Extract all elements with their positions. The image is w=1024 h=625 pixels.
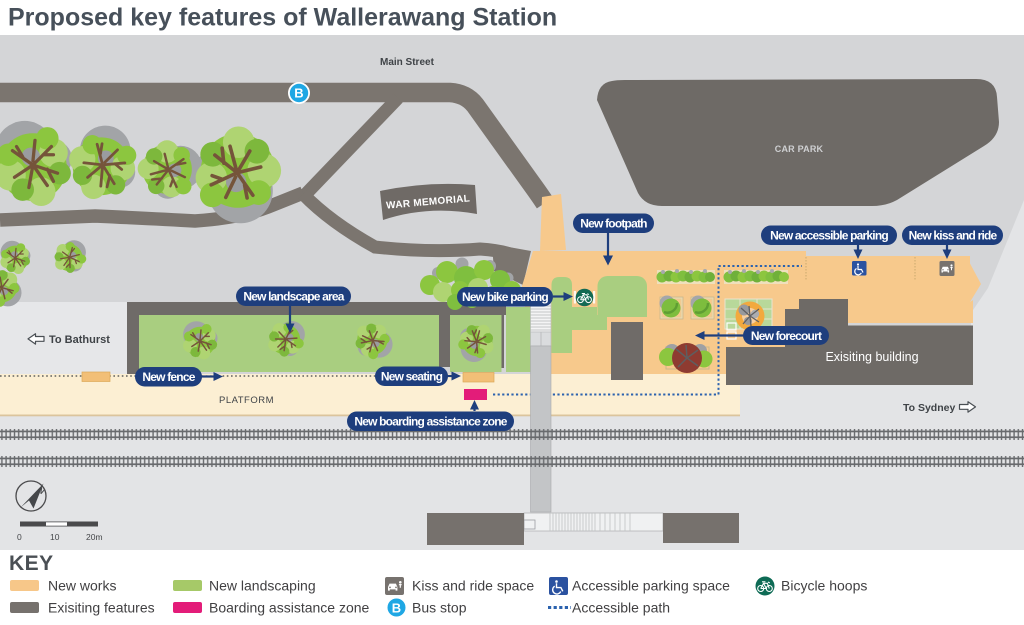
svg-text:10: 10 <box>50 532 60 542</box>
svg-text:Exisiting features: Exisiting features <box>48 600 155 616</box>
svg-text:Boarding assistance zone: Boarding assistance zone <box>209 600 370 616</box>
svg-text:Kiss and ride space: Kiss and ride space <box>412 578 534 594</box>
svg-text:Accessible parking space: Accessible parking space <box>572 578 730 594</box>
svg-text:New landscaping: New landscaping <box>209 578 316 594</box>
svg-text:New seating: New seating <box>381 370 443 384</box>
svg-text:New forecourt: New forecourt <box>751 329 822 343</box>
svg-text:New fence: New fence <box>142 370 195 384</box>
svg-text:0: 0 <box>17 532 22 542</box>
svg-text:CAR PARK: CAR PARK <box>775 144 824 154</box>
svg-text:New footpath: New footpath <box>580 217 647 231</box>
svg-text:KEY: KEY <box>9 552 54 575</box>
svg-text:New landscape area: New landscape area <box>243 290 344 304</box>
svg-text:Main Street: Main Street <box>380 57 435 68</box>
svg-text:New kiss and ride: New kiss and ride <box>909 229 998 243</box>
svg-text:To Bathurst: To Bathurst <box>49 334 110 346</box>
svg-text:Bus stop: Bus stop <box>412 600 467 616</box>
svg-text:Proposed key features of Walle: Proposed key features of Wallerawang Sta… <box>8 4 557 32</box>
svg-text:20m: 20m <box>86 532 103 542</box>
svg-text:B: B <box>294 86 303 101</box>
svg-text:B: B <box>392 601 401 616</box>
svg-text:PLATFORM: PLATFORM <box>219 395 274 406</box>
svg-text:Accessible path: Accessible path <box>572 600 670 616</box>
svg-text:New boarding assistance zone: New boarding assistance zone <box>354 415 507 429</box>
svg-text:Bicycle hoops: Bicycle hoops <box>781 578 867 594</box>
svg-text:New accessible parking: New accessible parking <box>770 229 888 243</box>
svg-text:Exisiting building: Exisiting building <box>825 350 918 364</box>
svg-text:New works: New works <box>48 578 116 594</box>
svg-text:To Sydney: To Sydney <box>903 402 955 414</box>
svg-text:New bike parking: New bike parking <box>462 290 548 304</box>
